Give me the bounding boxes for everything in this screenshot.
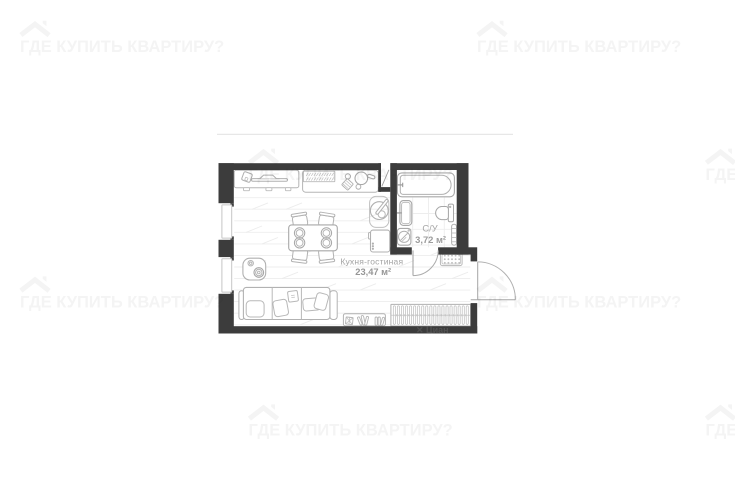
svg-text:ГДЕ КУПИТЬ КВАРТИРУ?: ГДЕ КУПИТЬ КВАРТИРУ?: [249, 422, 453, 440]
svg-text:ГДЕ КУПИТЬ КВАРТИРУ?: ГДЕ КУПИТЬ КВАРТИРУ?: [477, 294, 681, 312]
svg-text:С/У: С/У: [422, 223, 437, 233]
svg-text:23,47 м²: 23,47 м²: [355, 267, 391, 277]
svg-text:ГДЕ КУПИТЬ КВАРТИРУ?: ГДЕ КУПИТЬ КВАРТИРУ?: [706, 422, 735, 440]
svg-text:ГДЕ КУПИТЬ КВАРТИРУ?: ГДЕ КУПИТЬ КВАРТИРУ?: [249, 166, 453, 184]
svg-text:✕ Циан: ✕ Циан: [416, 325, 449, 335]
svg-text:Кухня-гостиная: Кухня-гостиная: [340, 256, 403, 266]
svg-text:ГДЕ КУПИТЬ КВАРТИРУ?: ГДЕ КУПИТЬ КВАРТИРУ?: [20, 294, 224, 312]
svg-text:ГДЕ КУПИТЬ КВАРТИРУ?: ГДЕ КУПИТЬ КВАРТИРУ?: [477, 38, 681, 56]
svg-text:3,72 м²: 3,72 м²: [415, 234, 446, 245]
svg-text:ГДЕ КУПИТЬ КВАРТИРУ?: ГДЕ КУПИТЬ КВАРТИРУ?: [706, 166, 735, 184]
svg-text:ГДЕ КУПИТЬ КВАРТИРУ?: ГДЕ КУПИТЬ КВАРТИРУ?: [20, 38, 224, 56]
